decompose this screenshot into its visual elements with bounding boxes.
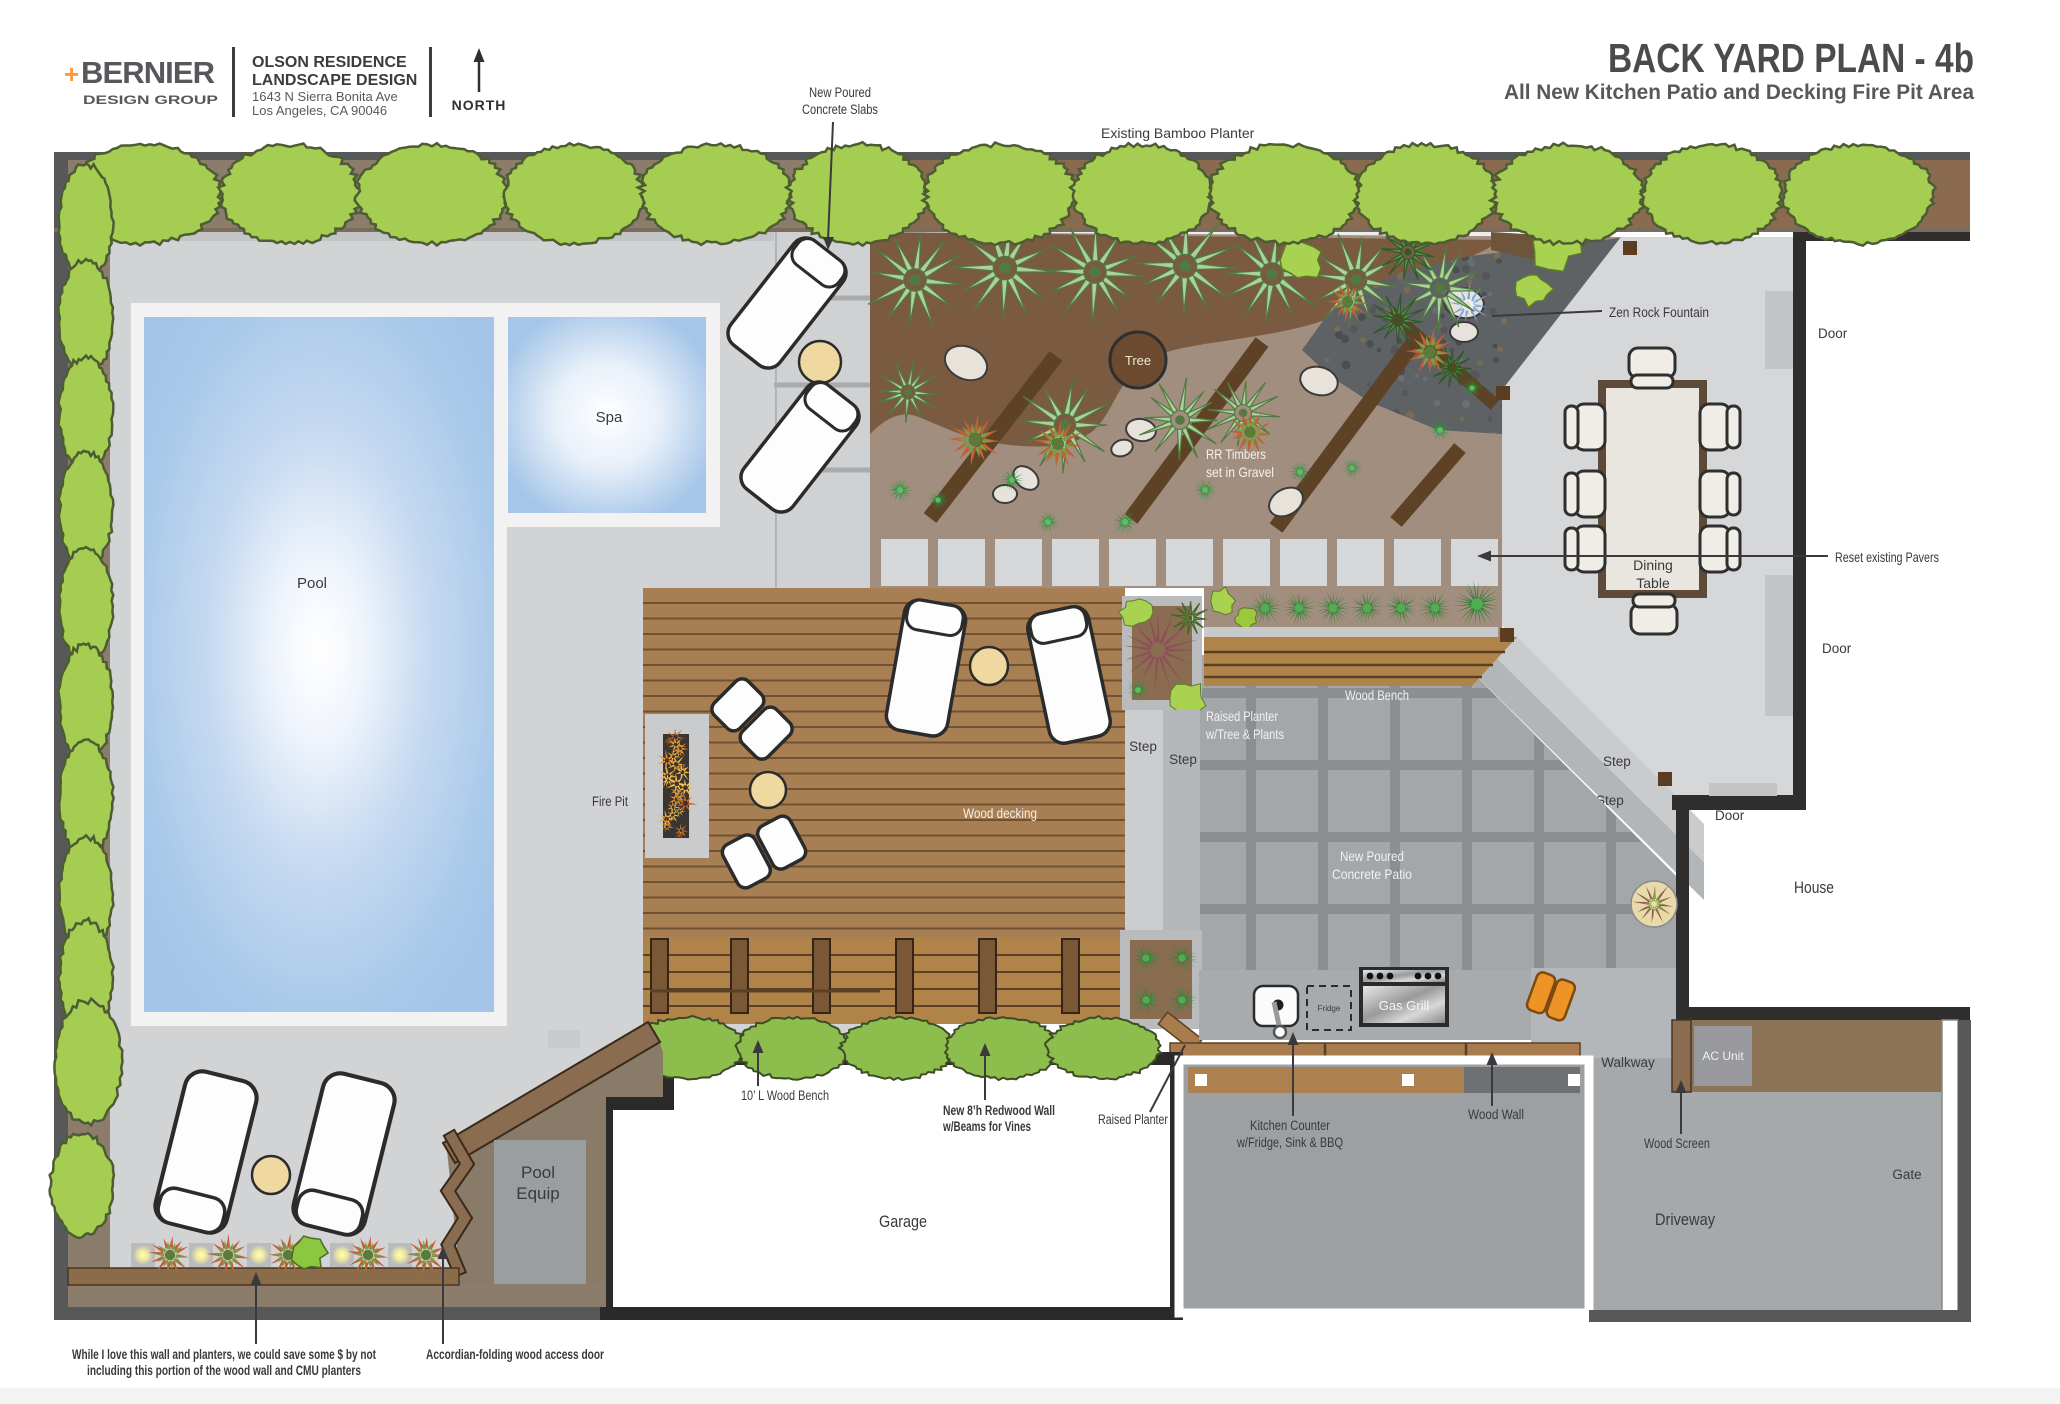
svg-text:Door: Door — [1715, 808, 1745, 823]
svg-text:10’ L Wood Bench: 10’ L Wood Bench — [741, 1088, 829, 1103]
svg-text:including this portion of the: including this portion of the wood wall … — [87, 1363, 361, 1378]
svg-text:Door: Door — [1822, 641, 1852, 656]
svg-text:Raised Planter: Raised Planter — [1206, 708, 1278, 724]
svg-text:New 8’h Redwood Wall: New 8’h Redwood Wall — [943, 1103, 1055, 1118]
svg-text:1643 N Sierra Bonita Ave: 1643 N Sierra Bonita Ave — [252, 89, 398, 104]
svg-text:set in Gravel: set in Gravel — [1206, 464, 1274, 480]
svg-text:Raised Planter: Raised Planter — [1098, 1112, 1168, 1127]
svg-text:Fire Pit: Fire Pit — [592, 794, 628, 809]
svg-text:New Poured: New Poured — [809, 85, 871, 100]
svg-text:NORTH: NORTH — [452, 97, 507, 113]
svg-text:Existing Bamboo Planter: Existing Bamboo Planter — [1101, 125, 1255, 141]
svg-text:Reset existing Pavers: Reset existing Pavers — [1835, 549, 1939, 565]
svg-text:Pool: Pool — [297, 575, 327, 592]
svg-text:AC Unit: AC Unit — [1702, 1049, 1744, 1063]
svg-text:LANDSCAPE DESIGN: LANDSCAPE DESIGN — [252, 72, 417, 89]
svg-text:Gas Grill: Gas Grill — [1379, 998, 1430, 1013]
svg-text:Zen Rock Fountain: Zen Rock Fountain — [1609, 304, 1709, 320]
svg-text:Tree: Tree — [1125, 353, 1151, 368]
svg-text:+: + — [64, 59, 79, 89]
svg-text:Fridge: Fridge — [1318, 1004, 1341, 1013]
svg-text:Concrete Patio: Concrete Patio — [1332, 866, 1412, 882]
svg-text:BACK YARD PLAN - 4b: BACK YARD PLAN - 4b — [1608, 35, 1974, 81]
svg-text:Step: Step — [1129, 739, 1157, 754]
svg-text:Wood Screen: Wood Screen — [1644, 1136, 1710, 1151]
svg-text:Walkway: Walkway — [1601, 1055, 1655, 1070]
svg-text:Equip: Equip — [516, 1184, 559, 1203]
svg-text:Wood Wall: Wood Wall — [1468, 1107, 1524, 1122]
svg-text:Kitchen Counter: Kitchen Counter — [1250, 1118, 1330, 1133]
svg-text:Spa: Spa — [596, 409, 623, 426]
svg-text:Gate: Gate — [1892, 1167, 1921, 1182]
svg-text:Door: Door — [1818, 326, 1848, 341]
svg-text:Wood decking: Wood decking — [963, 805, 1037, 821]
svg-text:w/Fridge, Sink & BBQ: w/Fridge, Sink & BBQ — [1236, 1135, 1343, 1150]
svg-text:Accordian-folding wood access: Accordian-folding wood access door — [426, 1347, 605, 1362]
svg-text:Step: Step — [1169, 752, 1197, 767]
svg-text:w/Beams for Vines: w/Beams for Vines — [942, 1119, 1031, 1134]
svg-text:Concrete Slabs: Concrete Slabs — [802, 102, 878, 117]
svg-text:Dining: Dining — [1633, 557, 1673, 573]
svg-text:New Poured: New Poured — [1340, 848, 1404, 864]
svg-text:Wood Bench: Wood Bench — [1345, 687, 1409, 703]
svg-text:Table: Table — [1636, 575, 1670, 591]
svg-text:Garage: Garage — [879, 1212, 927, 1231]
svg-text:Driveway: Driveway — [1655, 1210, 1715, 1229]
svg-text:Pool: Pool — [521, 1163, 555, 1182]
svg-text:While I love this wall and pla: While I love this wall and planters, we … — [72, 1347, 376, 1362]
svg-text:w/Tree & Plants: w/Tree & Plants — [1205, 726, 1284, 742]
svg-text:Step: Step — [1603, 754, 1631, 769]
svg-text:BERNIER: BERNIER — [81, 55, 215, 90]
svg-text:Los Angeles, CA 90046: Los Angeles, CA 90046 — [252, 103, 387, 118]
svg-text:DESIGN GROUP: DESIGN GROUP — [83, 93, 218, 107]
svg-text:OLSON RESIDENCE: OLSON RESIDENCE — [252, 54, 407, 71]
svg-text:House: House — [1794, 878, 1834, 897]
svg-text:All New Kitchen Patio and Deck: All New Kitchen Patio and Decking Fire P… — [1504, 81, 1974, 104]
